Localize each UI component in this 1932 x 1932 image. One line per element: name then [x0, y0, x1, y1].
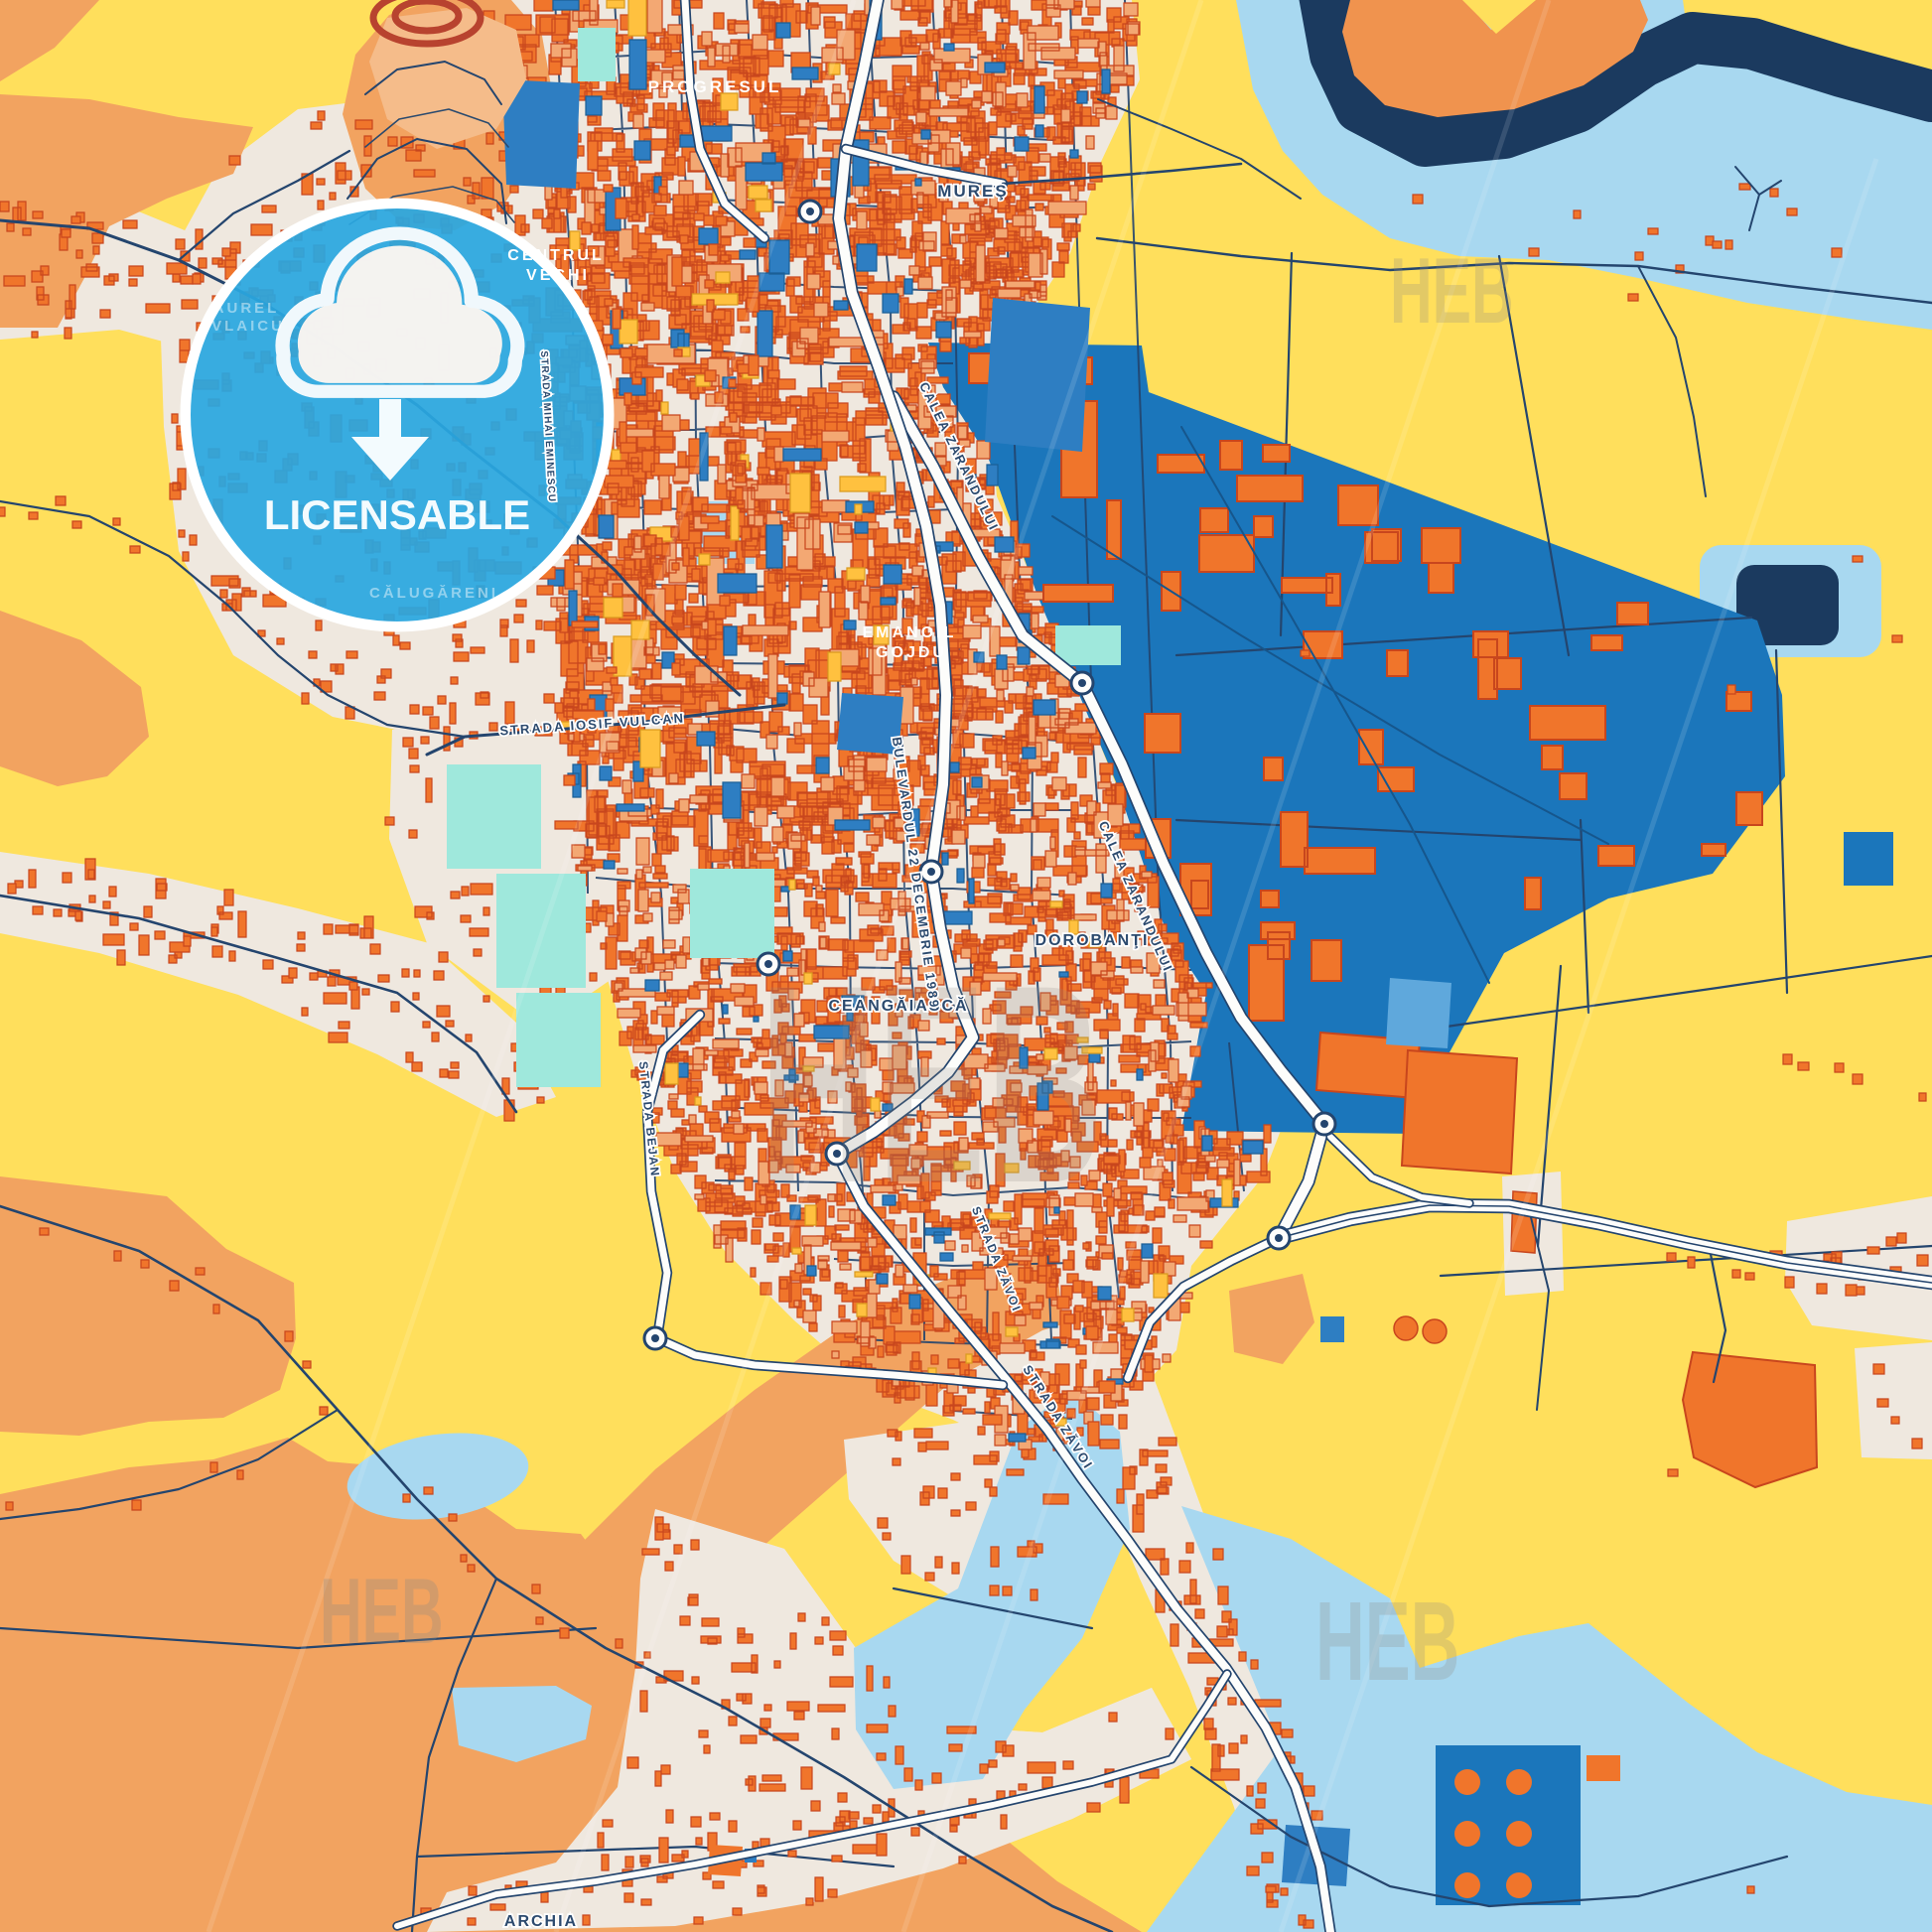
- svg-text:HEB: HEB: [1315, 1578, 1459, 1704]
- svg-text:PROGRESUL: PROGRESUL: [648, 77, 782, 96]
- svg-text:GOJDU: GOJDU: [876, 644, 947, 661]
- svg-text:MUREŞ: MUREŞ: [937, 182, 1008, 201]
- svg-text:LICENSABLE: LICENSABLE: [264, 491, 530, 538]
- svg-text:CĂLUGĂRENI: CĂLUGĂRENI: [369, 585, 498, 602]
- svg-text:VLAICU: VLAICU: [211, 318, 285, 335]
- svg-text:DOROBANŢI: DOROBANŢI: [1035, 932, 1150, 949]
- svg-text:AUREL: AUREL: [213, 300, 280, 317]
- svg-text:ARCHIA: ARCHIA: [504, 1913, 578, 1930]
- svg-text:CEANGĂIASCĂ: CEANGĂIASCĂ: [828, 996, 968, 1015]
- svg-text:HEB: HEB: [320, 1559, 444, 1663]
- svg-text:CENTRUL: CENTRUL: [507, 247, 604, 264]
- svg-text:EMANOIL: EMANOIL: [863, 624, 957, 641]
- svg-text:HEB: HEB: [1390, 238, 1514, 343]
- svg-text:VECHI: VECHI: [526, 267, 590, 284]
